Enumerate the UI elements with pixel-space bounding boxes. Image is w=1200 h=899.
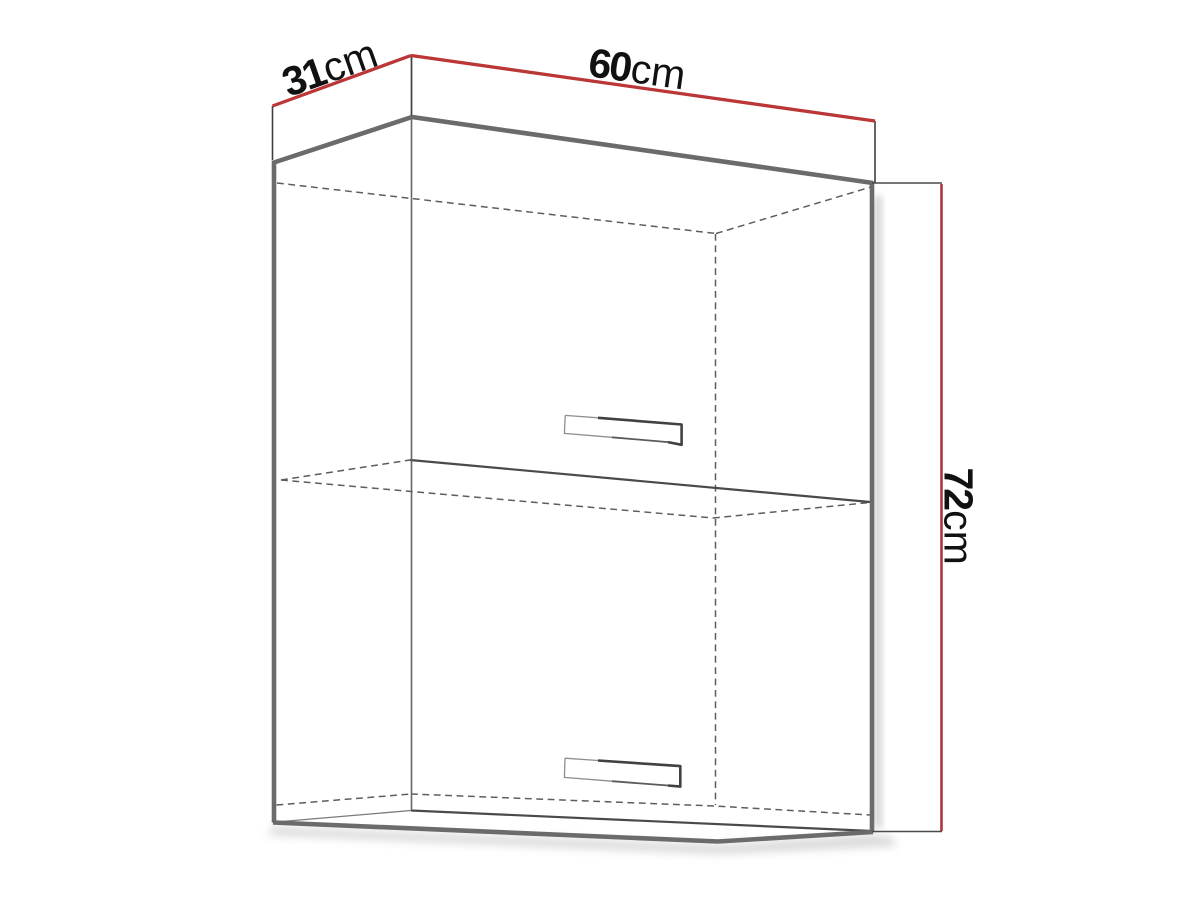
svg-text:31cm: 31cm [276, 30, 383, 106]
svg-text:72cm: 72cm [936, 468, 982, 565]
svg-text:60cm: 60cm [586, 39, 689, 98]
